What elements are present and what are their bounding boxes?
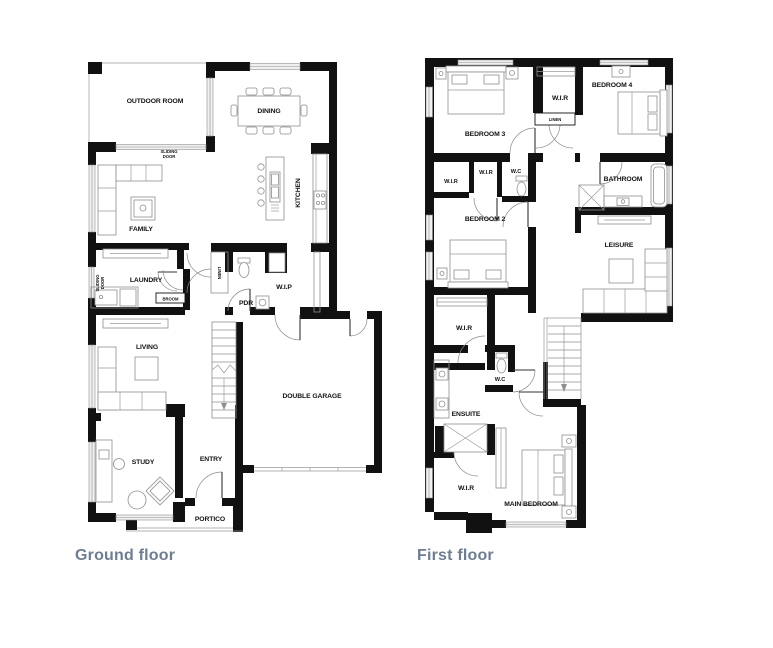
ground-stairs	[212, 322, 236, 418]
label-wir-bed4: W.I.R	[552, 95, 568, 102]
svg-text:BROOM: BROOM	[162, 297, 179, 302]
label-bedroom-4: BEDROOM 4	[592, 82, 633, 89]
garage-door	[254, 468, 366, 472]
portico-slab	[126, 528, 243, 531]
svg-text:LINEN: LINEN	[549, 117, 562, 122]
label-leisure: LEISURE	[605, 242, 634, 249]
ground-floor-caption: Ground floor	[75, 547, 175, 564]
label-wir-bed2-a: W.I.R	[444, 179, 458, 185]
ground-floor-plan: OUTDOOR ROOM DINING KITCHEN FAMILY SLIDI…	[75, 62, 382, 564]
label-wc-upper: W.C	[511, 169, 522, 175]
label-ensuite: ENSUITE	[452, 411, 481, 418]
floor-plan-page: OUTDOOR ROOM DINING KITCHEN FAMILY SLIDI…	[0, 0, 773, 648]
label-sliding-door-left: SLIDING DOOR	[95, 275, 105, 292]
label-bedroom-2: BEDROOM 2	[465, 216, 506, 223]
label-kitchen: KITCHEN	[295, 178, 302, 208]
floor-plan-canvas: OUTDOOR ROOM DINING KITCHEN FAMILY SLIDI…	[0, 0, 773, 648]
label-entry: ENTRY	[200, 456, 223, 463]
label-dining: DINING	[257, 108, 280, 115]
svg-text:LINEN: LINEN	[217, 267, 222, 280]
label-wir-main-upper: W.I.R	[456, 325, 472, 332]
label-laundry: LAUNDRY	[130, 277, 163, 284]
label-portico: PORTICO	[195, 516, 225, 523]
svg-text:DOOR: DOOR	[163, 154, 176, 159]
label-wir-main-lower: W.I.R	[458, 485, 474, 492]
label-wir-bed2-b: W.I.R	[479, 170, 493, 176]
label-family: FAMILY	[129, 226, 153, 233]
label-living: LIVING	[136, 344, 158, 351]
first-stairs	[544, 318, 581, 399]
label-main-bedroom: MAIN BEDROOM	[504, 501, 558, 508]
label-outdoor-room: OUTDOOR ROOM	[127, 98, 184, 105]
label-bathroom: BATHROOM	[604, 176, 643, 183]
label-double-garage: DOUBLE GARAGE	[282, 393, 342, 400]
label-study: STUDY	[132, 459, 155, 466]
label-linen-first: LINEN	[535, 113, 575, 125]
label-bedroom-3: BEDROOM 3	[465, 131, 506, 138]
first-floor-plan: BEDROOM 3 W.I.R LINEN BEDROOM 4 W.I.R W.…	[417, 58, 673, 564]
label-pdr: PDR	[239, 300, 253, 307]
label-sliding-door-top: SLIDING DOOR	[161, 149, 178, 159]
label-wip: W.I.P	[276, 284, 292, 291]
label-broom: BROOM	[156, 293, 185, 303]
label-wc-lower: W.C	[495, 377, 506, 383]
first-floor-caption: First floor	[417, 547, 494, 564]
svg-text:DOOR: DOOR	[100, 277, 105, 290]
